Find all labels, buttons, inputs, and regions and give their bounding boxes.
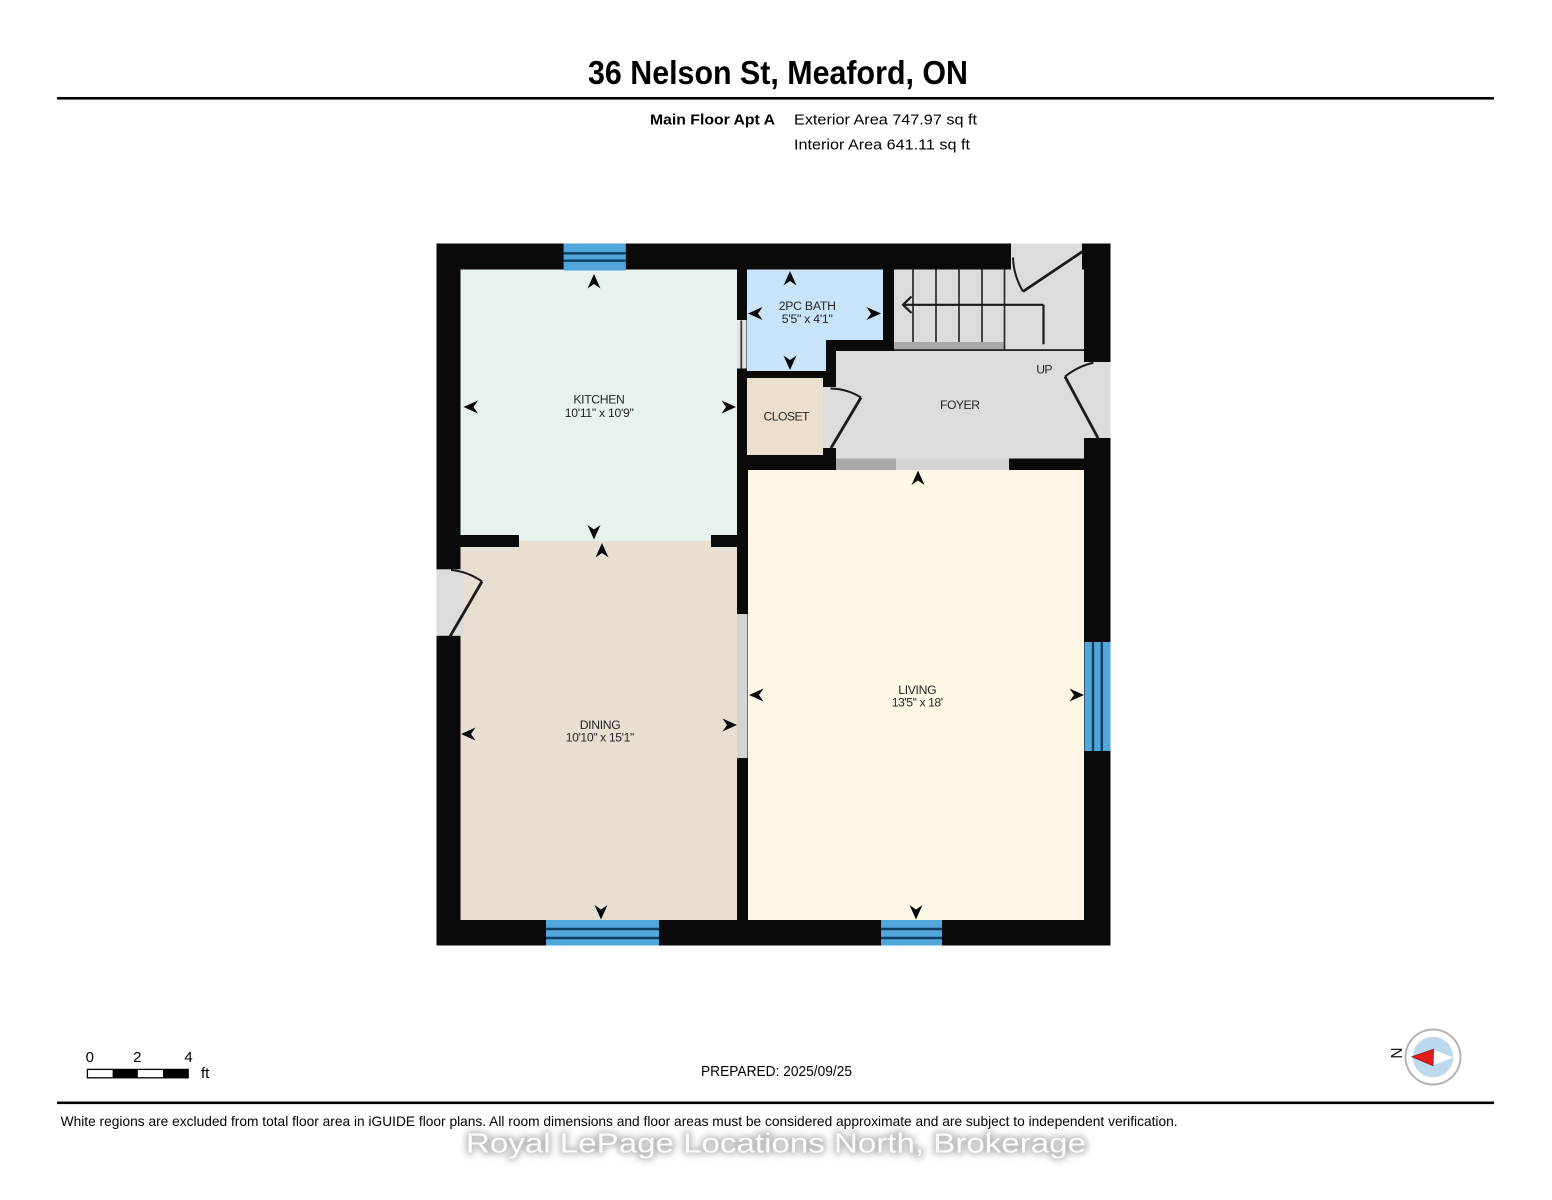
svg-text:2: 2 <box>133 1049 141 1066</box>
svg-text:10'10" x 15'1": 10'10" x 15'1" <box>566 731 635 745</box>
svg-text:0: 0 <box>86 1049 94 1066</box>
svg-text:UP: UP <box>1036 363 1052 377</box>
svg-text:KITCHEN: KITCHEN <box>573 393 624 407</box>
svg-text:CLOSET: CLOSET <box>764 410 811 424</box>
svg-text:Interior Area 641.11 sq ft: Interior Area 641.11 sq ft <box>794 137 971 154</box>
svg-text:Exterior Area 747.97 sq ft: Exterior Area 747.97 sq ft <box>794 112 978 129</box>
svg-text:5'5" x 4'1": 5'5" x 4'1" <box>782 312 833 326</box>
svg-text:Royal LePage Locations North,: Royal LePage Locations North, Brokerage <box>466 1128 1086 1159</box>
svg-text:N: N <box>1389 1047 1406 1058</box>
svg-text:Main Floor Apt A: Main Floor Apt A <box>650 112 775 129</box>
svg-text:10'11" x 10'9": 10'11" x 10'9" <box>565 406 634 420</box>
svg-text:ft: ft <box>201 1065 210 1082</box>
svg-text:PREPARED: 2025/09/25: PREPARED: 2025/09/25 <box>701 1064 852 1080</box>
svg-text:2PC BATH: 2PC BATH <box>779 299 836 313</box>
svg-text:FOYER: FOYER <box>940 398 980 412</box>
svg-text:4: 4 <box>184 1049 192 1066</box>
svg-text:36 Nelson St, Meaford, ON: 36 Nelson St, Meaford, ON <box>588 54 968 91</box>
svg-text:13'5" x 18': 13'5" x 18' <box>892 696 943 710</box>
